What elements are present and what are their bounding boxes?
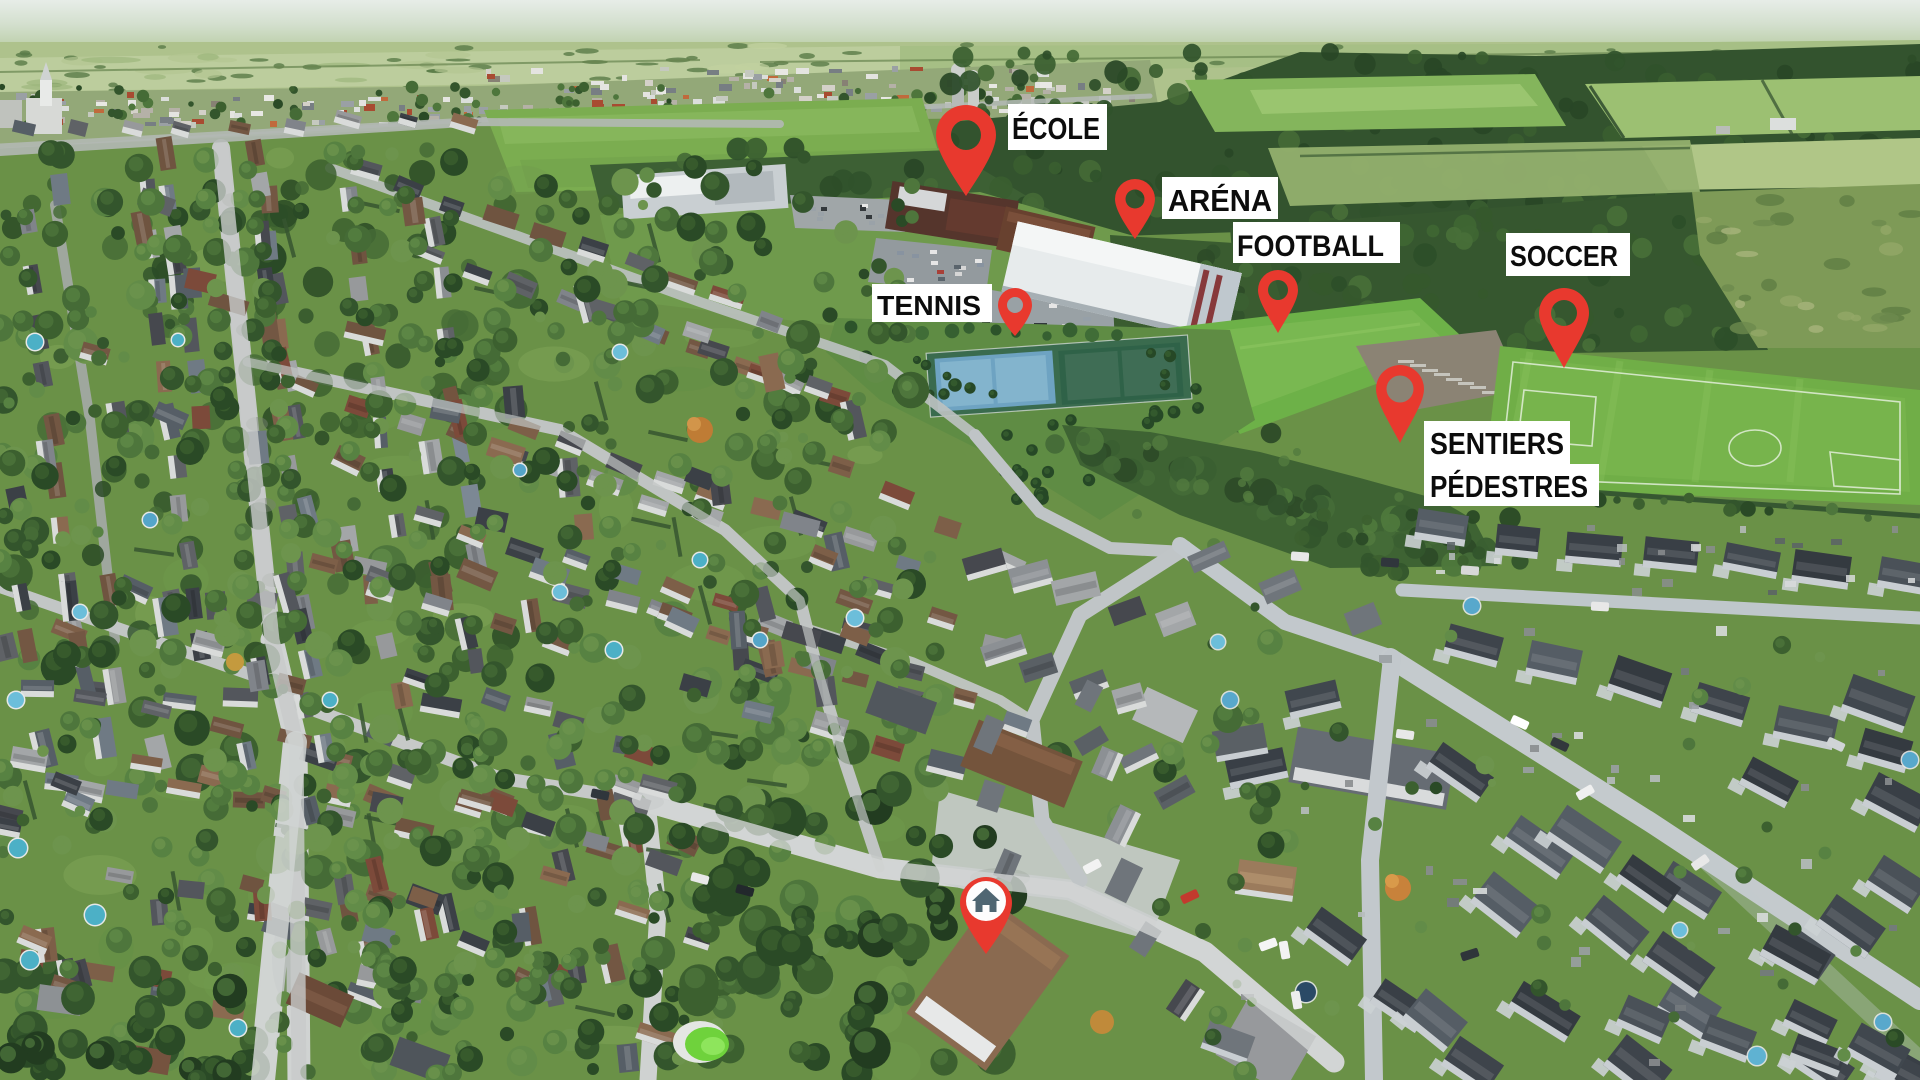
svg-text:SENTIERS: SENTIERS [1430,426,1564,461]
svg-text:FOOTBALL: FOOTBALL [1237,230,1384,263]
svg-text:ARÉNA: ARÉNA [1168,183,1272,218]
svg-text:ÉCOLE: ÉCOLE [1012,111,1100,146]
svg-text:SOCCER: SOCCER [1510,241,1618,273]
svg-text:TENNIS: TENNIS [877,290,981,321]
svg-text:PÉDESTRES: PÉDESTRES [1430,469,1588,504]
